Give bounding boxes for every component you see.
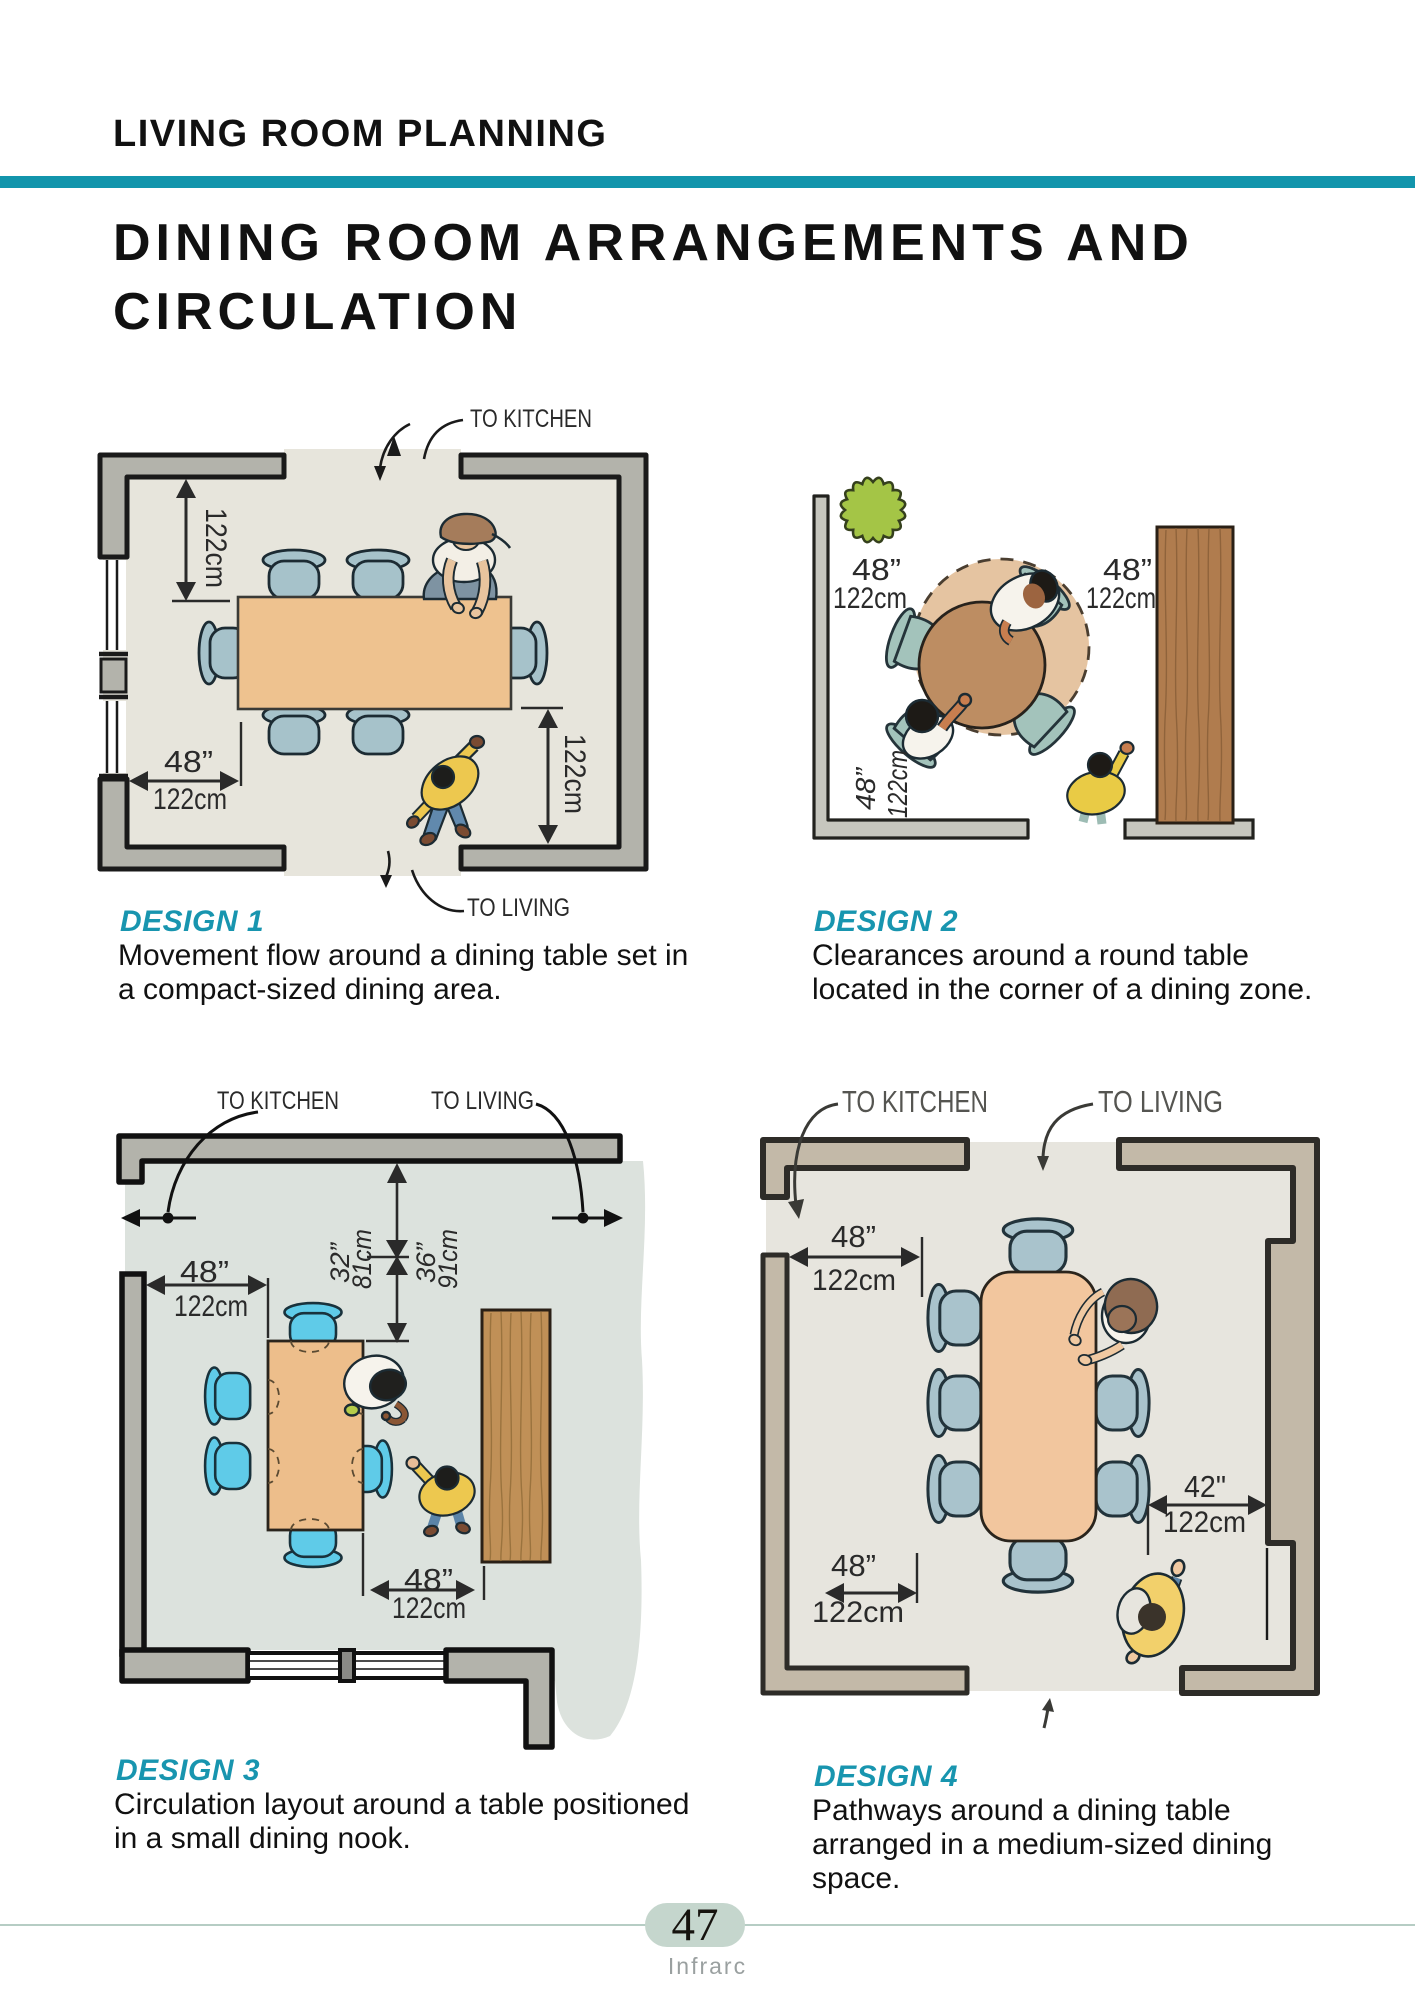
svg-text:TO LIVING: TO LIVING bbox=[431, 1087, 534, 1115]
svg-text:122cm: 122cm bbox=[1086, 582, 1156, 615]
svg-text:122cm: 122cm bbox=[174, 1290, 248, 1323]
svg-text:TO LIVING: TO LIVING bbox=[1098, 1085, 1223, 1119]
svg-text:122cm: 122cm bbox=[812, 1596, 904, 1629]
svg-text:42": 42" bbox=[1184, 1469, 1226, 1504]
svg-text:48”: 48” bbox=[164, 744, 213, 779]
svg-text:48”: 48” bbox=[831, 1548, 876, 1583]
svg-text:TO LIVING: TO LIVING bbox=[467, 894, 570, 922]
svg-text:48”: 48” bbox=[180, 1254, 229, 1289]
svg-text:48”: 48” bbox=[850, 766, 881, 810]
svg-text:122cm: 122cm bbox=[882, 750, 913, 818]
svg-text:122cm: 122cm bbox=[558, 734, 591, 814]
svg-text:122cm: 122cm bbox=[199, 508, 232, 588]
svg-text:122cm: 122cm bbox=[153, 783, 227, 816]
svg-text:TO KITCHEN: TO KITCHEN bbox=[217, 1087, 339, 1115]
svg-text:91cm: 91cm bbox=[433, 1229, 463, 1289]
svg-text:TO KITCHEN: TO KITCHEN bbox=[470, 405, 592, 433]
svg-text:122cm: 122cm bbox=[812, 1264, 896, 1297]
svg-text:81cm: 81cm bbox=[347, 1229, 377, 1289]
svg-text:48”: 48” bbox=[831, 1219, 876, 1254]
svg-text:122cm: 122cm bbox=[833, 582, 907, 615]
svg-text:122cm: 122cm bbox=[1163, 1506, 1246, 1539]
svg-text:122cm: 122cm bbox=[392, 1592, 466, 1625]
svg-text:TO KITCHEN: TO KITCHEN bbox=[842, 1085, 988, 1119]
